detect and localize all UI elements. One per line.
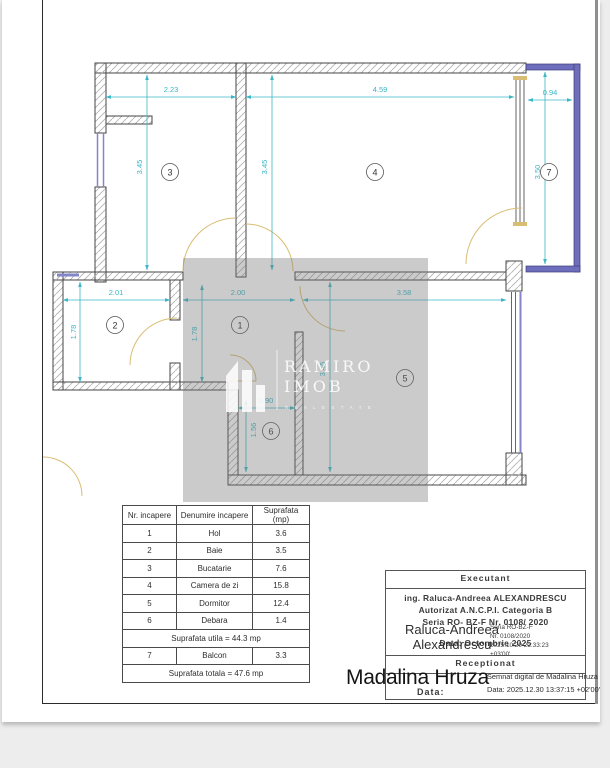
table-cell: 12.4 [253,595,310,613]
table-summary-row: Suprafata utila = 44.3 mp [123,630,310,648]
wall [170,280,180,320]
dimension-label: 1.78 [69,325,78,340]
balcony-wall [574,64,580,272]
table-cell: 7 [123,647,177,665]
table-cell: 4 [123,577,177,595]
wall [53,382,180,390]
door-arc [466,208,522,264]
table-cell: Balcon [177,647,253,665]
signature-detail-line: Nr. 0108/2020 [490,632,549,641]
wall [236,63,246,277]
table-row: 5 Dormitor 12.4 [123,595,310,613]
table-cell: Baie [177,542,253,560]
door-arc [43,457,82,496]
room-marker: 2 [107,317,124,334]
table-cell: 7.6 [253,560,310,578]
table-cell: 3.6 [253,525,310,543]
table-cell: 1 [123,525,177,543]
table-cell: 3.3 [253,647,310,665]
room-marker: 4 [367,164,384,181]
balcony-wall [526,266,580,272]
col-header-area: Suprafata (mp) [253,506,310,525]
executant-line2: Autorizat A.N.C.P.I. Categoria B [386,604,585,616]
room-marker: 3 [162,164,179,181]
table-cell: Debara [177,612,253,630]
window-sill [513,222,527,226]
watermark-group: RAMIRO IMOB R E A L E S T A T E [183,258,428,502]
room-number: 2 [112,321,117,331]
table-cell: Hol [177,525,253,543]
dimension-label: 2.01 [109,288,124,297]
col-header-nr: Nr. incapere [123,506,177,525]
table-cell: 6 [123,612,177,630]
dimension-label: 4.59 [373,85,388,94]
wall [95,63,526,73]
receptionat-digital-signature-details: Semnat digital de Madalina Hruza Data: 2… [487,670,600,696]
executant-body: ing. Raluca-Andreea ALEXANDRESCU Autoriz… [386,589,585,655]
room-areas-table: Nr. incapere Denumire incapere Suprafata… [122,505,310,683]
table-cell: 2 [123,542,177,560]
wall [506,261,522,291]
wall [95,63,106,133]
room-marker: 7 [541,164,558,181]
wall [106,116,152,124]
table-cell: 1.4 [253,612,310,630]
dimension-label: 0.94 [543,88,558,97]
col-header-name: Denumire incapere [177,506,253,525]
signature-detail-line: 2025.10.20 22:33:23 [490,641,549,650]
table-row: 3 Bucatarie 7.6 [123,560,310,578]
signature-detail-line: Data: 2025.12.30 13:37:15 +02'00' [487,683,600,696]
useful-area-total: Suprafata utila = 44.3 mp [123,630,310,648]
table-cell: Camera de zi [177,577,253,595]
wall [506,453,522,485]
table-row: 2 Baie 3.5 [123,542,310,560]
table-row: 4 Camera de zi 15.8 [123,577,310,595]
executant-digital-signature-details: Seria RO-BZ-F Nr. 0108/2020 2025.10.20 2… [490,623,549,659]
table-cell: 5 [123,595,177,613]
watermark-tagline: R E A L E S T A T E [285,405,373,410]
table-cell: Bucatarie [177,560,253,578]
total-area: Suprafata totala = 47.6 mp [123,665,310,683]
table-header-row: Nr. incapere Denumire incapere Suprafata… [123,506,310,525]
screenshot-root: { "floor_plan": { "rooms": { "r1": "1", … [0,0,610,768]
balcony-wall [526,64,580,70]
room-number: 3 [167,168,172,178]
table-cell: 3 [123,560,177,578]
signature-detail-line: Seria RO-BZ-F [490,623,549,632]
table-summary-row: Suprafata totala = 47.6 mp [123,665,310,683]
signature-detail-line: Semnat digital de Madalina Hruza [487,670,600,683]
executant-line1: ing. Raluca-Andreea ALEXANDRESCU [386,592,585,604]
executant-header: Executant [386,571,585,589]
signature-detail-line: +03'00' [490,650,549,659]
table-row: 1 Hol 3.6 [123,525,310,543]
dimension-label: 3.45 [260,160,269,175]
wall [95,187,106,282]
door-arc [130,318,177,365]
receptionat-date-label: Data: [417,687,445,697]
watermark-brand-line1: RAMIRO [284,357,373,376]
watermark-brand-line2: IMOB [284,377,344,396]
room-number: 4 [372,168,377,178]
dimension-label: 3.45 [135,160,144,175]
table-row: 6 Debara 1.4 [123,612,310,630]
window-sill [513,76,527,80]
dimension-label: 2.23 [164,85,179,94]
wall [53,272,63,390]
room-number: 7 [546,168,551,178]
table-cell: 15.8 [253,577,310,595]
table-cell: 3.5 [253,542,310,560]
wall [170,363,180,390]
table-cell: Dormitor [177,595,253,613]
table-row: 7 Balcon 3.3 [123,647,310,665]
